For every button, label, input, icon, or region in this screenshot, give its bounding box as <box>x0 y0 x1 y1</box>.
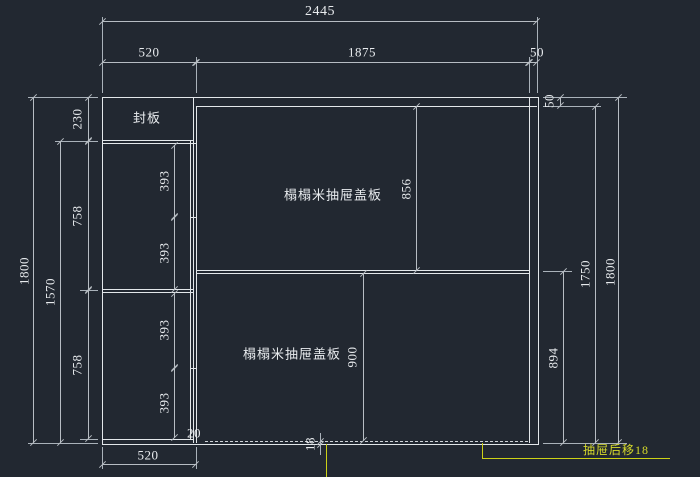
dim-line-right-1800 <box>618 97 619 443</box>
cad-viewport[interactable]: 2445 520 1875 50 1800 1570 230 758 758 3… <box>0 0 700 477</box>
dim-line-900 <box>363 273 364 441</box>
ext-line <box>102 17 103 93</box>
seal-plate-bottom-line2[interactable] <box>102 143 196 144</box>
dim-line-bottom-520 <box>102 464 196 465</box>
dim-right-1800: 1800 <box>604 258 617 286</box>
dim-line-758-upper <box>88 141 89 290</box>
dim-393-1: 393 <box>158 171 171 192</box>
ext-line <box>543 271 572 272</box>
stub-line-upper[interactable] <box>190 217 196 218</box>
dim-line-1570 <box>60 141 61 443</box>
column-mid-line[interactable] <box>102 289 193 290</box>
dim-top-50: 50 <box>530 46 544 59</box>
dim-line-top-1875 <box>196 62 529 63</box>
dim-line-top-50 <box>529 62 537 63</box>
leader-vertical-line[interactable] <box>482 443 483 458</box>
ext-line <box>102 447 103 469</box>
left-column-outer-edge[interactable] <box>193 97 194 443</box>
leader-horizontal-line[interactable] <box>482 458 670 459</box>
dim-856: 856 <box>400 179 413 200</box>
dim-393-3: 393 <box>158 320 171 341</box>
dim-line-1750 <box>595 106 596 443</box>
dim-line-393-1 <box>174 145 175 217</box>
right-rail-line[interactable] <box>529 97 530 443</box>
dim-20: 20 <box>187 427 201 440</box>
dim-top-1875: 1875 <box>348 46 376 59</box>
dim-total-width: 2445 <box>305 5 335 19</box>
seal-plate-bottom-line[interactable] <box>102 140 193 141</box>
dim-line-393-4 <box>174 368 175 438</box>
dim-line-393-2 <box>174 217 175 290</box>
dim-393-4: 393 <box>158 393 171 414</box>
dim-right-50: 50 <box>543 94 556 108</box>
dim-230: 230 <box>71 109 84 130</box>
column-mid-line2[interactable] <box>102 292 193 293</box>
label-lower-panel[interactable]: 榻榻米抽屉盖板 <box>243 348 341 361</box>
dim-18: 18 <box>304 437 317 451</box>
ext-line <box>28 443 98 444</box>
column-bottom-line[interactable] <box>102 439 193 440</box>
dim-line-top-520 <box>102 62 196 63</box>
dim-894: 894 <box>547 348 560 369</box>
dim-line-left-1800 <box>33 97 34 443</box>
panel-divider-line[interactable] <box>196 270 529 271</box>
note-drawer-setback[interactable]: 抽屉后移18 <box>583 444 649 456</box>
dim-line-856 <box>416 106 417 271</box>
dim-758-upper: 758 <box>71 206 84 227</box>
dim-left-1800: 1800 <box>18 257 31 285</box>
dim-758-lower: 758 <box>71 355 84 376</box>
label-upper-panel[interactable]: 榻榻米抽屉盖板 <box>284 189 382 202</box>
ext-line <box>196 447 197 469</box>
dim-top-520: 520 <box>139 46 160 59</box>
dim-1750: 1750 <box>579 260 592 288</box>
dim-line-894 <box>563 271 564 443</box>
left-column-inner-edge[interactable] <box>190 141 191 439</box>
dim-line-right-50 <box>560 97 561 106</box>
dim-393-2: 393 <box>158 243 171 264</box>
dim-line-758-lower <box>88 290 89 439</box>
ext-line <box>80 439 98 440</box>
top-rail-line[interactable] <box>196 106 537 107</box>
main-panel-left-edge[interactable] <box>196 106 197 443</box>
dim-line-393-3 <box>174 293 175 368</box>
stub-line-lower[interactable] <box>190 368 196 369</box>
dim-line-230 <box>88 97 89 141</box>
dim-1570: 1570 <box>44 278 57 306</box>
dim-bottom-520: 520 <box>138 449 159 462</box>
dim-line-total-width <box>102 21 537 22</box>
label-seal-plate[interactable]: 封板 <box>133 112 161 125</box>
drawer-setback-dashed-line[interactable] <box>205 441 528 442</box>
dim-900: 900 <box>346 347 359 368</box>
yellow-marker-line[interactable] <box>326 444 327 477</box>
